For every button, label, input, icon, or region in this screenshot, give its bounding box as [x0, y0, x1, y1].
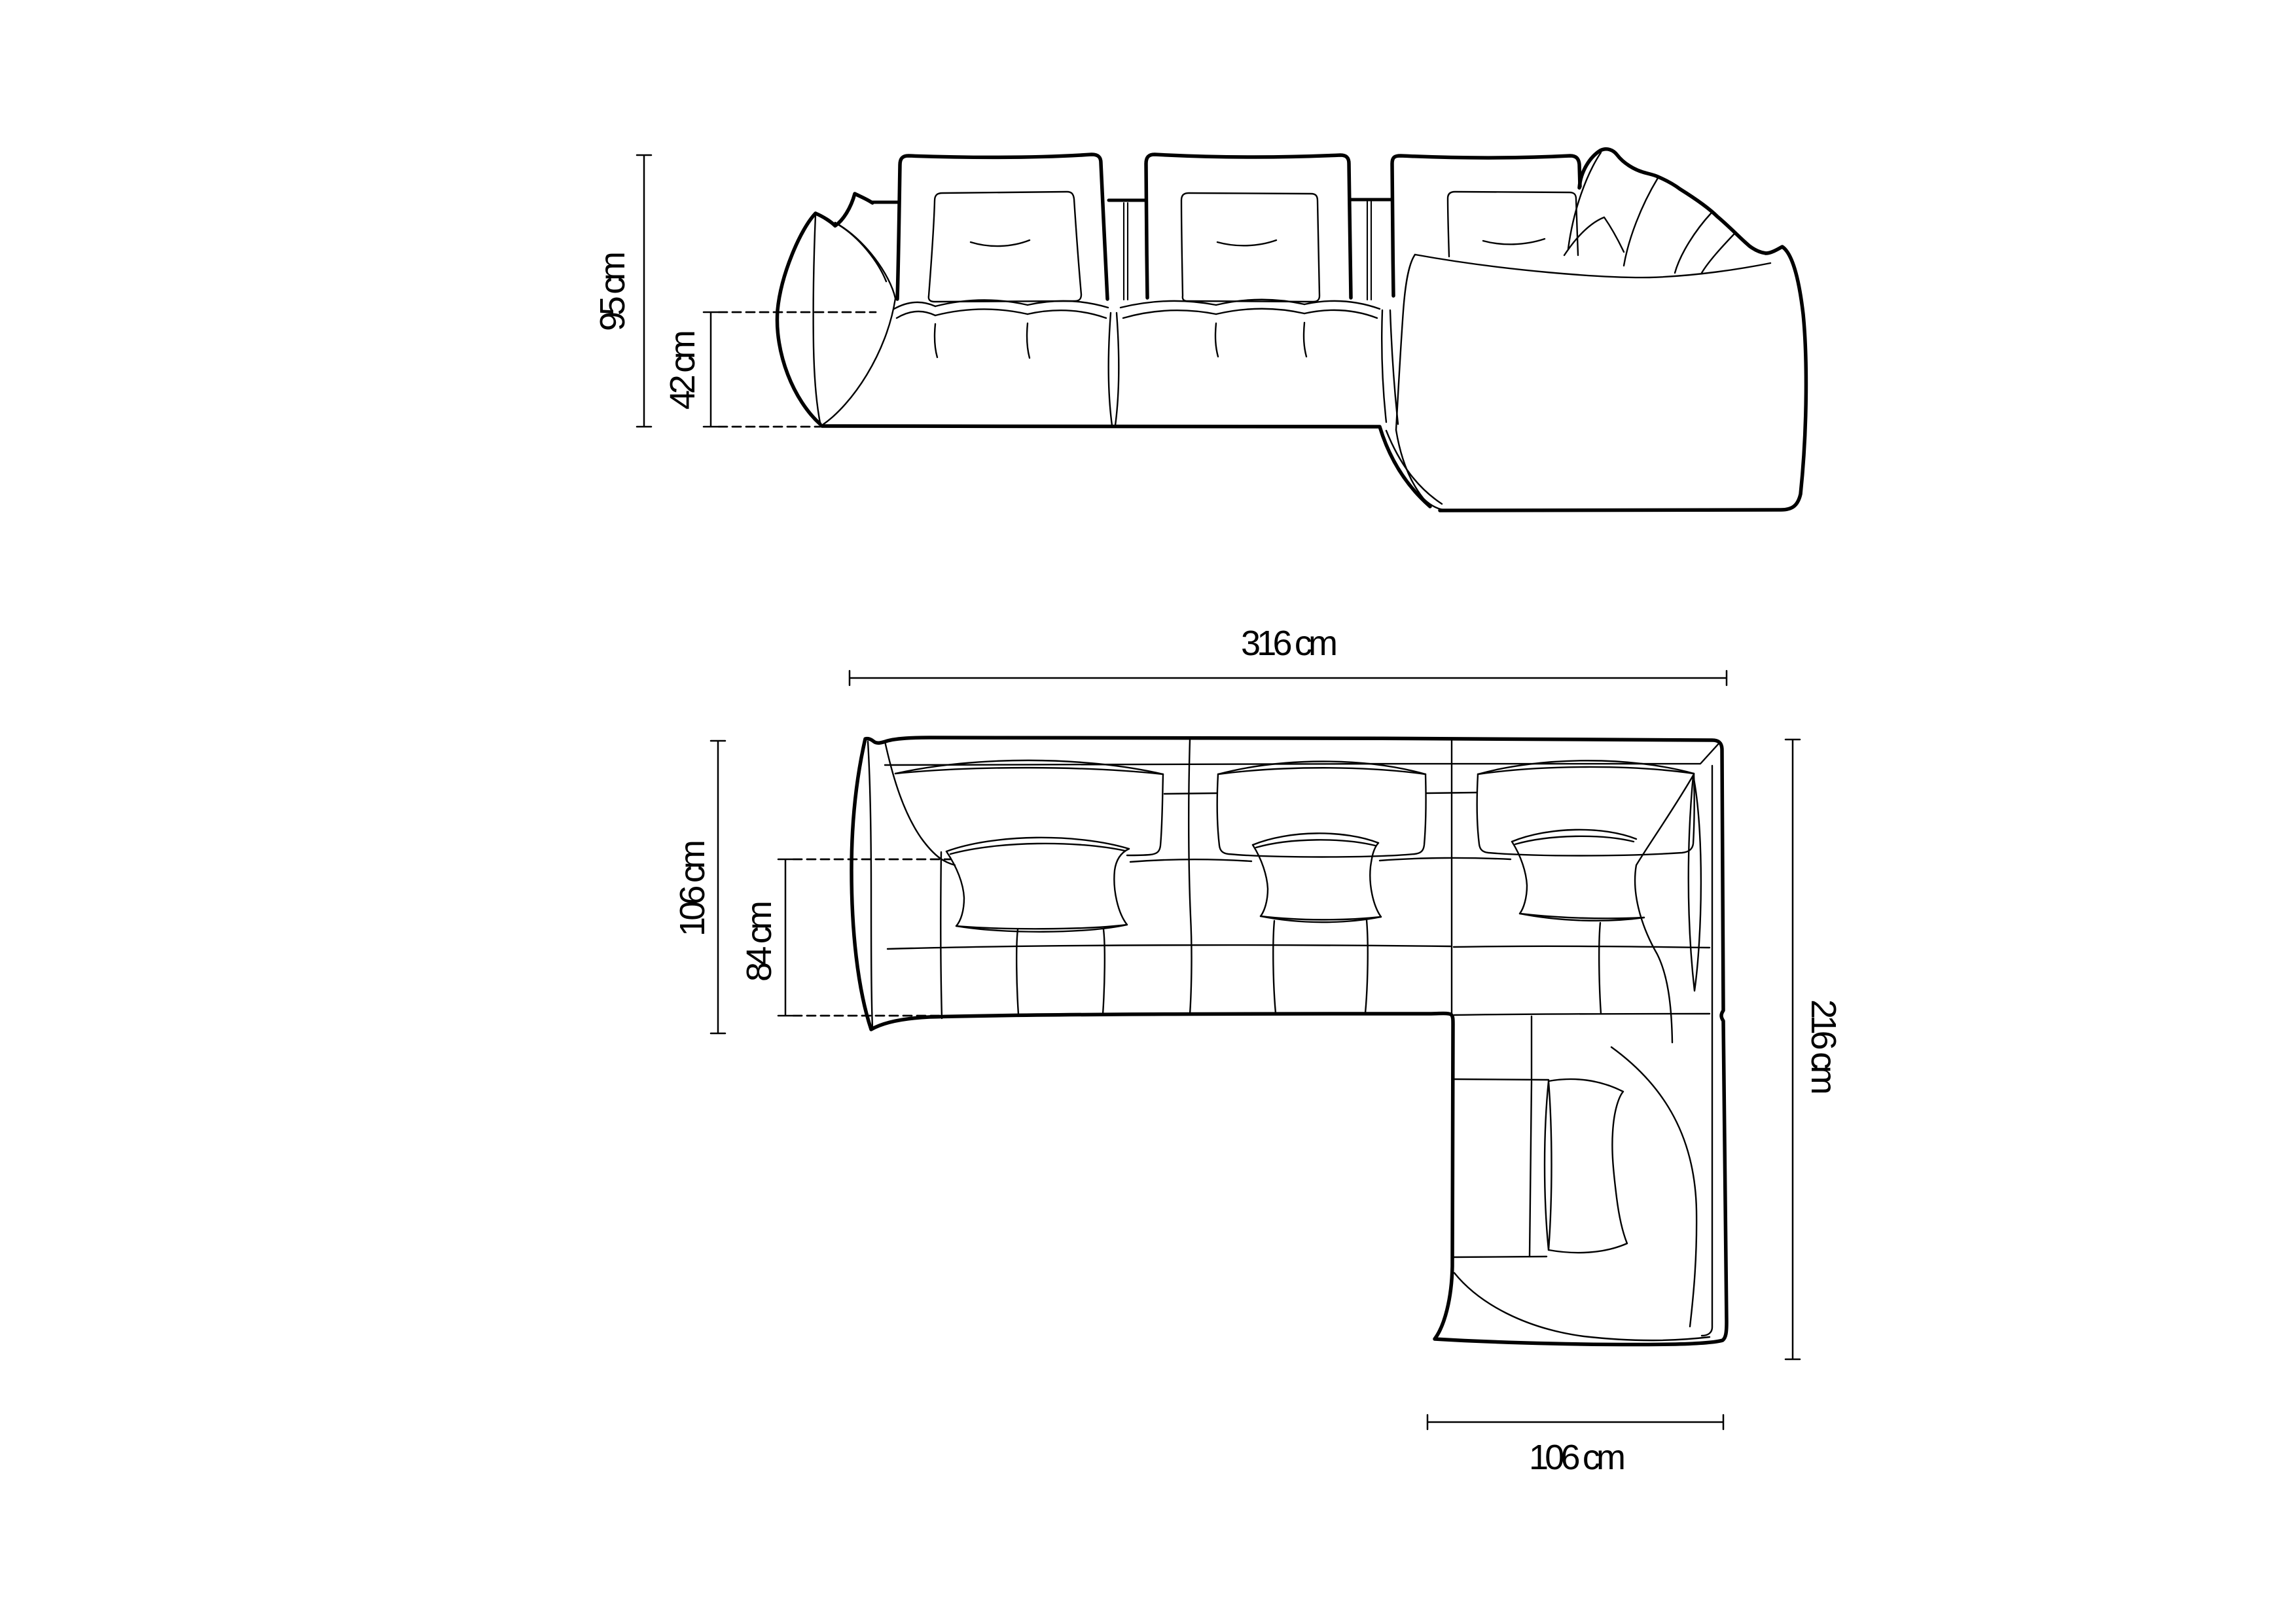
- svg-text:84 cm: 84 cm: [740, 901, 779, 982]
- svg-text:316 cm: 316 cm: [1241, 624, 1338, 663]
- svg-text:106 cm: 106 cm: [1529, 1438, 1626, 1477]
- svg-text:42 cm: 42 cm: [663, 330, 702, 410]
- svg-text:106 cm: 106 cm: [673, 840, 712, 936]
- svg-text:216 cm: 216 cm: [1804, 999, 1843, 1095]
- svg-text:95 cm: 95 cm: [593, 251, 632, 331]
